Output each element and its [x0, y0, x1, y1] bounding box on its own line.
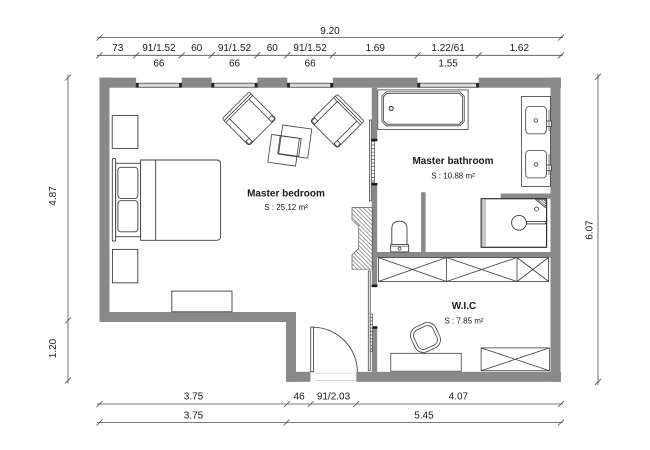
svg-text:60: 60	[267, 43, 279, 54]
svg-text:1.69: 1.69	[365, 43, 385, 54]
svg-text:S : 7.85 m²: S : 7.85 m²	[444, 317, 483, 326]
svg-text:91/2.03: 91/2.03	[317, 392, 351, 403]
svg-text:91/1.52: 91/1.52	[218, 43, 252, 54]
svg-text:Master bathroom: Master bathroom	[412, 156, 493, 167]
svg-text:3.75: 3.75	[184, 411, 204, 422]
svg-text:66: 66	[305, 59, 317, 70]
svg-text:1.20: 1.20	[48, 338, 59, 358]
svg-text:1.22/61: 1.22/61	[431, 43, 465, 54]
svg-text:5.45: 5.45	[414, 411, 434, 422]
svg-text:3.75: 3.75	[184, 392, 204, 403]
svg-text:73: 73	[112, 43, 124, 54]
svg-text:46: 46	[294, 392, 306, 403]
svg-text:Master bedroom: Master bedroom	[247, 189, 325, 200]
svg-text:S : 10.88 m²: S : 10.88 m²	[431, 172, 475, 181]
svg-text:60: 60	[191, 43, 203, 54]
svg-text:4.87: 4.87	[48, 186, 59, 206]
svg-text:91/1.52: 91/1.52	[142, 43, 176, 54]
svg-text:4.07: 4.07	[449, 392, 469, 403]
svg-text:1.55: 1.55	[438, 59, 458, 70]
svg-text:91/1.52: 91/1.52	[293, 43, 327, 54]
svg-text:1.62: 1.62	[510, 43, 530, 54]
svg-text:W.I.C: W.I.C	[452, 301, 476, 312]
svg-text:S : 25.12 m²: S : 25.12 m²	[264, 203, 308, 212]
svg-text:6.07: 6.07	[585, 220, 596, 240]
svg-text:66: 66	[153, 59, 165, 70]
svg-text:9.20: 9.20	[320, 26, 340, 37]
svg-text:66: 66	[229, 59, 241, 70]
